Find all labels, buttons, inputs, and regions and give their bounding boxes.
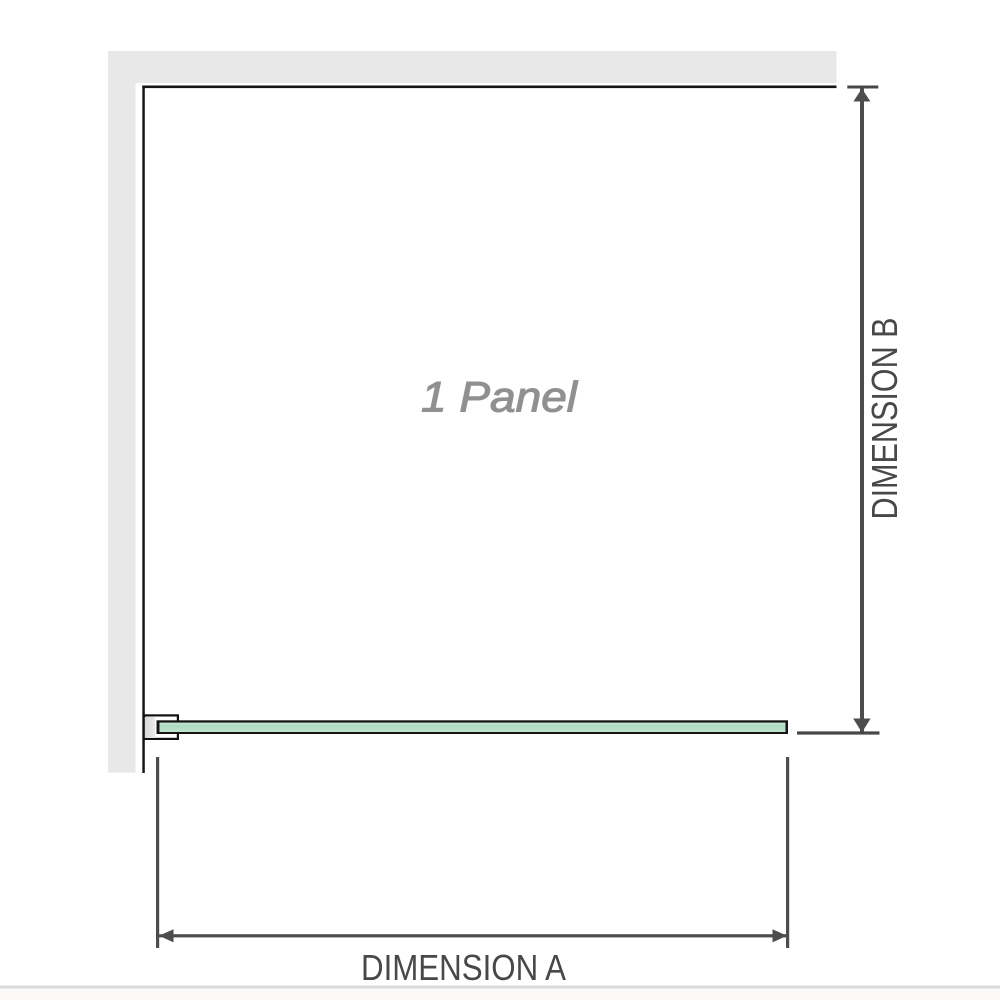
svg-text:1 Panel: 1 Panel xyxy=(421,375,579,422)
svg-text:DIMENSION B: DIMENSION B xyxy=(864,318,905,520)
svg-text:DIMENSION A: DIMENSION A xyxy=(361,947,566,988)
